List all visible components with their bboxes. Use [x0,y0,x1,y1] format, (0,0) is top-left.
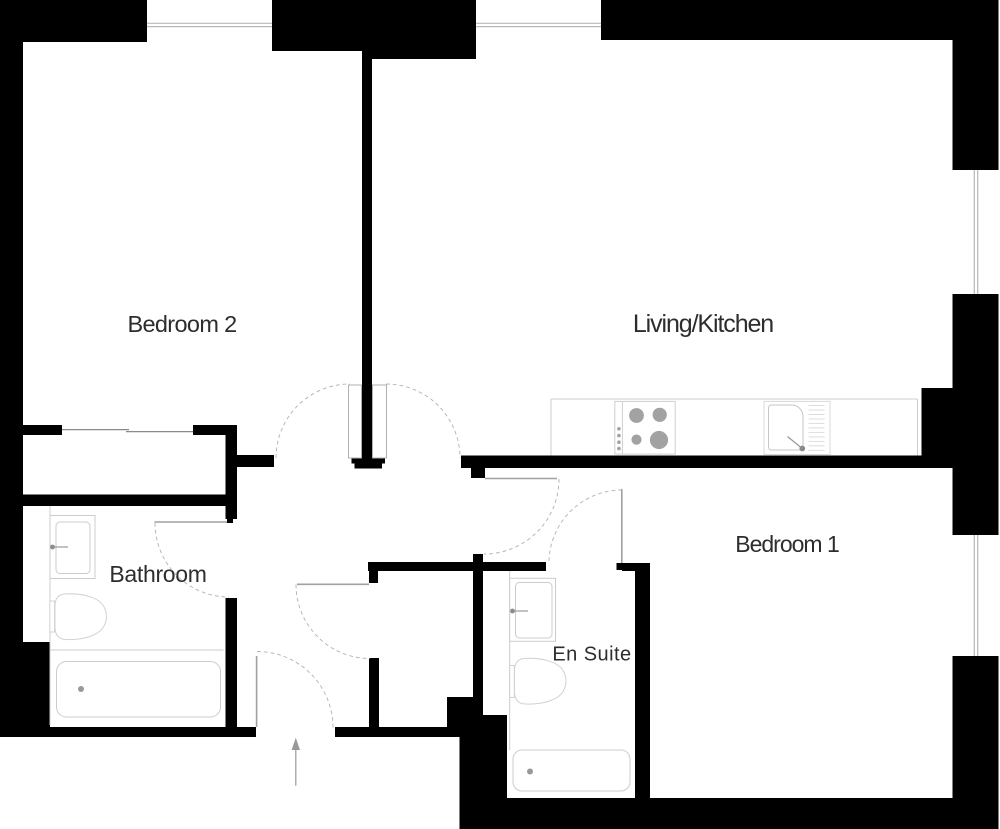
svg-text:Living/Kitchen: Living/Kitchen [633,310,773,338]
svg-text:En Suite: En Suite [552,644,631,666]
svg-text:Bedroom 2: Bedroom 2 [127,311,236,337]
svg-text:Bedroom 1: Bedroom 1 [735,531,839,557]
svg-text:Bathroom: Bathroom [109,561,206,587]
